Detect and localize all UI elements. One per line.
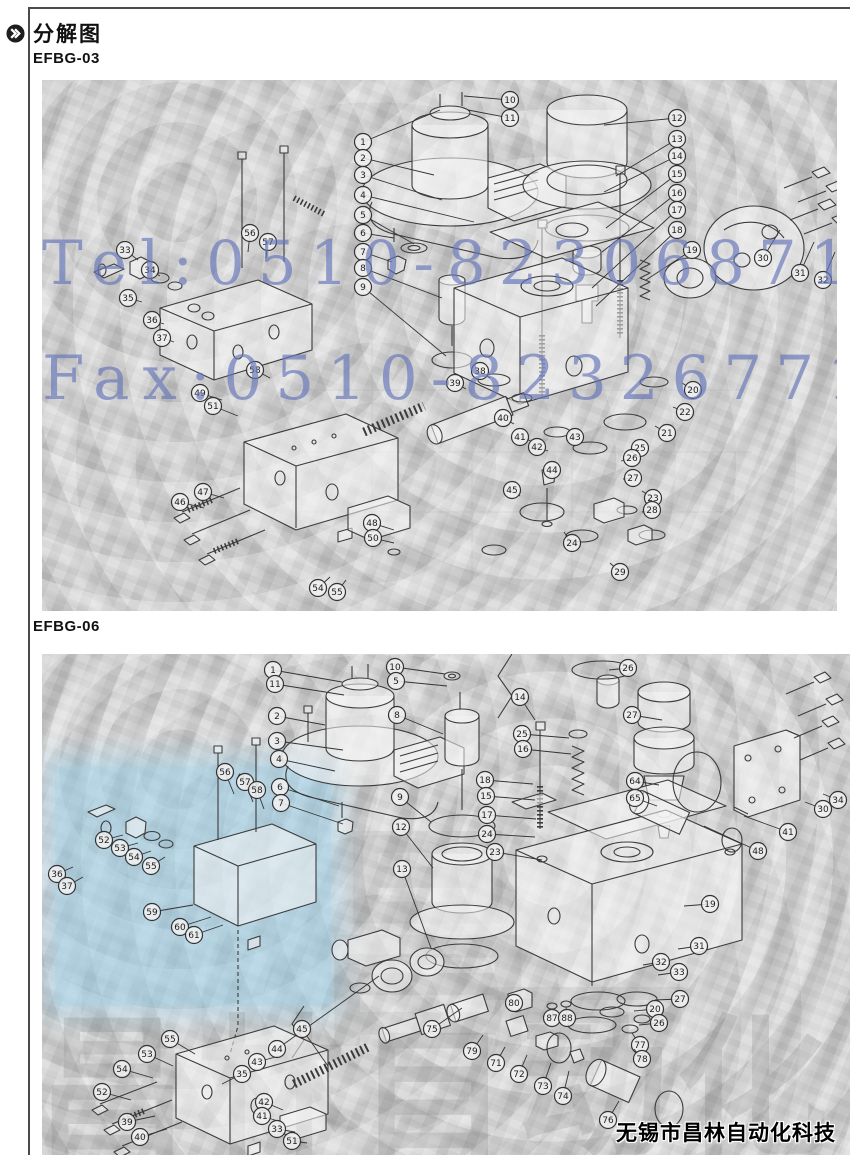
callout-number: 22 — [679, 408, 690, 418]
callout-number: 43 — [251, 1058, 262, 1068]
callout-number: 28 — [646, 506, 658, 516]
callout-number: 5 — [360, 211, 366, 221]
callout-number: 45 — [296, 1025, 307, 1035]
page-border-left — [28, 7, 30, 1155]
callout-number: 36 — [51, 870, 63, 880]
callout-number: 54 — [128, 853, 140, 863]
fold-mark — [498, 654, 512, 718]
callout-number: 72 — [513, 1070, 524, 1080]
callout-number: 55 — [331, 588, 342, 598]
callout-number: 12 — [395, 823, 406, 833]
callout-number: 11 — [269, 680, 280, 690]
callout-number: 8 — [394, 711, 400, 721]
callout-number: 42 — [531, 443, 542, 453]
callout-number: 30 — [757, 254, 769, 264]
callout-number: 41 — [514, 433, 525, 443]
callout-number: 53 — [114, 844, 125, 854]
callout-number: 49 — [194, 389, 206, 399]
callout-number: 59 — [146, 908, 158, 918]
callout-number: 56 — [219, 768, 231, 778]
callout-number: 15 — [671, 170, 682, 180]
callout-number: 20 — [687, 386, 699, 396]
callout-number: 26 — [622, 664, 634, 674]
callout-number: 88 — [561, 1014, 573, 1024]
callout-number: 75 — [426, 1025, 437, 1035]
callout-number: 35 — [236, 1070, 247, 1080]
efbg-03-exploded-diagram: 1234567891011121314151617181930313233343… — [42, 80, 837, 611]
callout-number: 78 — [636, 1055, 648, 1065]
callout-number: 33 — [271, 1125, 282, 1135]
callout-number: 9 — [397, 793, 403, 803]
callout-number: 18 — [479, 776, 491, 786]
callout-number: 80 — [508, 999, 520, 1009]
callout-number: 48 — [366, 519, 378, 529]
callout-number: 16 — [671, 189, 683, 199]
callout-number: 79 — [466, 1047, 478, 1057]
callout-number: 36 — [146, 316, 158, 326]
model-label-efbg03: EFBG-03 — [33, 50, 100, 67]
callout-number: 25 — [516, 730, 527, 740]
callout-number: 9 — [360, 283, 366, 293]
callout-number: 37 — [156, 334, 167, 344]
callout-number: 18 — [671, 226, 683, 236]
page-border-top — [28, 7, 850, 9]
callout-number: 58 — [251, 786, 263, 796]
callout-number: 56 — [244, 229, 256, 239]
callout-number: 37 — [61, 882, 72, 892]
callout-number: 35 — [122, 294, 133, 304]
callout-number: 21 — [661, 429, 672, 439]
company-name-overlay: 无锡市昌林自动化科技 — [616, 1117, 836, 1147]
callout-number: 6 — [277, 783, 283, 793]
callout-number: 41 — [782, 828, 793, 838]
page-header: 分解图 — [6, 18, 102, 48]
callout-number: 64 — [629, 777, 641, 787]
callout-number: 17 — [671, 206, 682, 216]
callout-number: 34 — [144, 266, 156, 276]
callout-number: 3 — [360, 171, 366, 181]
callout-number: 10 — [389, 663, 401, 673]
callout-number: 48 — [752, 847, 764, 857]
callout-number: 13 — [671, 135, 682, 145]
callout-number: 39 — [449, 379, 461, 389]
callout-number: 40 — [497, 414, 509, 424]
callout-number: 31 — [794, 269, 805, 279]
callout-number: 50 — [367, 534, 379, 544]
callout-number: 55 — [145, 862, 156, 872]
callout-number: 2 — [360, 154, 366, 164]
callout-number: 20 — [649, 1005, 661, 1015]
scanned-catalog-page: 分解图 EFBG-03 — [0, 0, 850, 1155]
callout-number: 19 — [686, 246, 698, 256]
callout-number: 4 — [360, 191, 366, 201]
callout-number: 16 — [517, 745, 529, 755]
callout-number: 12 — [671, 114, 682, 124]
callout-number: 17 — [481, 811, 492, 821]
callout-number: 74 — [557, 1092, 569, 1102]
callout-number: 10 — [504, 96, 516, 106]
callout-number: 30 — [817, 805, 829, 815]
callout-number: 39 — [121, 1118, 133, 1128]
callout-number: 57 — [262, 238, 273, 248]
model-label-efbg06: EFBG-06 — [33, 618, 100, 635]
callout-number: 14 — [671, 152, 683, 162]
callout-number: 42 — [258, 1098, 269, 1108]
callout-number: 26 — [626, 454, 638, 464]
callout-number: 34 — [832, 796, 844, 806]
callout-number: 13 — [396, 865, 407, 875]
callout-number: 47 — [197, 488, 208, 498]
callout-number: 44 — [271, 1045, 283, 1055]
callout-number: 54 — [312, 584, 324, 594]
callout-number: 5 — [393, 677, 399, 687]
efbg-06-exploded-diagram: 昌林自动化 昌 — [42, 654, 850, 1155]
callout-number: 45 — [506, 486, 517, 496]
section-marker-icon — [6, 24, 25, 43]
callout-number: 8 — [360, 264, 366, 274]
callout-number: 61 — [188, 931, 199, 941]
callout-number: 40 — [134, 1133, 146, 1143]
callout-number: 71 — [490, 1059, 501, 1069]
callout-number: 41 — [256, 1112, 267, 1122]
callout-number: 33 — [673, 968, 684, 978]
callout-number: 51 — [207, 402, 218, 412]
left-manifold-drawing — [94, 146, 324, 380]
callout-number: 33 — [119, 246, 130, 256]
callout-number: 32 — [655, 958, 666, 968]
callout-number: 2 — [274, 712, 280, 722]
callout-number: 73 — [537, 1082, 548, 1092]
callout-number: 38 — [474, 367, 486, 377]
callout-number: 44 — [546, 466, 558, 476]
callout-number: 46 — [174, 498, 186, 508]
callout-number: 19 — [704, 900, 716, 910]
callout-number: 52 — [96, 1088, 107, 1098]
callout-number: 24 — [566, 539, 578, 549]
callout-number: 27 — [674, 995, 685, 1005]
callout-number: 55 — [164, 1035, 175, 1045]
callout-number: 65 — [629, 794, 640, 804]
callout-number: 3 — [274, 737, 280, 747]
callout-number: 60 — [174, 923, 186, 933]
callout-number: 6 — [360, 229, 366, 239]
callout-number: 7 — [360, 248, 366, 258]
callout-number: 24 — [481, 830, 493, 840]
callout-number: 29 — [614, 568, 626, 578]
callout-number: 53 — [141, 1050, 152, 1060]
callout-number: 15 — [480, 792, 491, 802]
page-title: 分解图 — [33, 18, 102, 48]
callout-number: 26 — [653, 1019, 665, 1029]
callout-number: 87 — [546, 1014, 557, 1024]
callout-number: 32 — [817, 276, 828, 286]
callout-number: 7 — [278, 799, 284, 809]
callout-number: 4 — [276, 755, 282, 765]
callout-number: 14 — [514, 693, 526, 703]
end-cover-drawing — [664, 167, 837, 298]
callout-number: 43 — [569, 433, 580, 443]
callout-number: 76 — [602, 1116, 614, 1126]
callout-number: 27 — [627, 474, 638, 484]
callout-number: 23 — [489, 848, 500, 858]
callout-number: 54 — [116, 1065, 128, 1075]
callout-number: 31 — [693, 942, 704, 952]
callout-number: 58 — [249, 366, 261, 376]
callout-number: 1 — [270, 666, 276, 676]
callout-number: 11 — [504, 114, 515, 124]
callout-number: 51 — [286, 1137, 297, 1147]
callout-number: 27 — [626, 711, 637, 721]
callout-number: 77 — [634, 1041, 645, 1051]
callout-number: 1 — [360, 138, 366, 148]
callout-number: 52 — [98, 836, 109, 846]
